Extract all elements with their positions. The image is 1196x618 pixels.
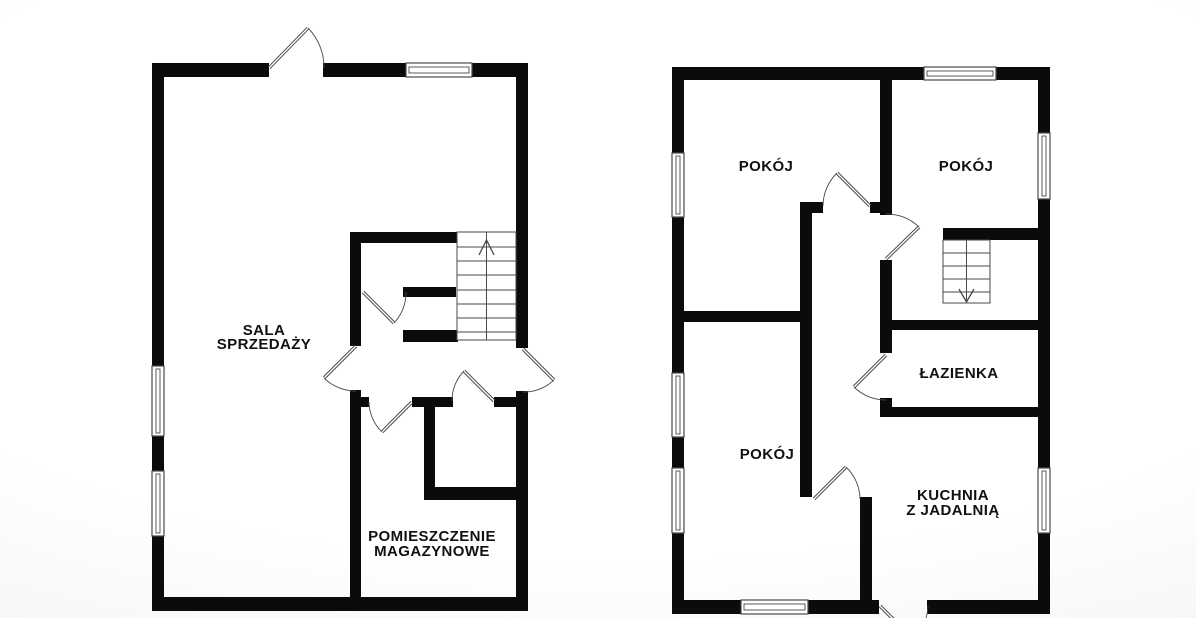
wall-segment <box>672 217 684 373</box>
floorplan-image: SALASPRZEDAŻYPOMIESZCZENIEMAGAZYNOWEPOKÓ… <box>0 0 1196 618</box>
window <box>741 600 808 614</box>
wall-segment <box>672 437 684 468</box>
door-swing-arc <box>308 28 324 68</box>
door-leaf <box>325 347 357 379</box>
wall-segment <box>152 63 164 366</box>
wall-segment <box>684 311 800 322</box>
door-leaf <box>838 172 871 205</box>
door-leaf <box>463 372 493 402</box>
lazienka-label: ŁAZIENKA <box>919 365 998 382</box>
wall-segment <box>880 260 892 353</box>
kuchnia-z-jadalnia-label: Z JADALNIĄ <box>906 502 999 519</box>
floorplan-canvas: SALASPRZEDAŻYPOMIESZCZENIEMAGAZYNOWEPOKÓ… <box>0 0 1196 618</box>
door <box>452 370 495 402</box>
door-swing-arc <box>369 402 382 432</box>
wall-segment <box>403 330 458 342</box>
wall-segment <box>927 600 1050 614</box>
wall-segment <box>672 67 684 153</box>
door <box>879 605 928 618</box>
door-leaf <box>881 605 914 618</box>
pokoj-bottom-left-label: POKÓJ <box>740 445 795 463</box>
wall-segment <box>152 436 164 471</box>
door-swing-arc <box>886 214 919 227</box>
pokoj-top-right-label: POKÓJ <box>939 157 994 175</box>
door-leaf <box>836 174 869 207</box>
staircase-up <box>457 232 516 340</box>
door-swing-arc <box>846 467 860 499</box>
window-frame <box>152 366 164 436</box>
pomieszczenie-magazynowe-label: MAGAZYNOWE <box>374 543 490 560</box>
window <box>152 366 164 436</box>
pokoj-top-left-label: POKÓJ <box>739 157 794 175</box>
door-leaf <box>268 27 307 67</box>
wall-segment <box>152 63 269 77</box>
door-leaf <box>855 356 887 388</box>
window-frame <box>1038 468 1050 533</box>
door <box>823 172 871 207</box>
door <box>362 291 406 324</box>
window-frame <box>672 468 684 533</box>
window-frame <box>924 67 996 80</box>
wall-segment <box>516 391 528 611</box>
window-frame <box>152 471 164 536</box>
wall-segment <box>350 397 369 407</box>
window <box>152 471 164 536</box>
door-swing-arc <box>913 606 928 618</box>
window <box>672 373 684 437</box>
wall-segment <box>494 397 516 407</box>
wall-segment <box>412 397 453 407</box>
door-leaf <box>381 401 411 431</box>
wall-segment <box>424 397 435 494</box>
window <box>924 67 996 80</box>
door-swing-arc <box>823 173 837 206</box>
wall-segment <box>403 287 456 297</box>
wall-segment <box>800 202 812 497</box>
window <box>406 63 472 77</box>
window <box>672 153 684 217</box>
door <box>813 466 860 500</box>
door-leaf <box>364 291 395 322</box>
wall-segment <box>350 232 458 243</box>
door <box>522 348 555 392</box>
window <box>1038 133 1050 199</box>
left-floor-plan: SALASPRZEDAŻYPOMIESZCZENIEMAGAZYNOWE <box>152 27 555 611</box>
window <box>672 468 684 533</box>
wall-segment <box>808 600 879 614</box>
wall-segment <box>943 228 1050 240</box>
window-frame <box>1038 133 1050 199</box>
door-leaf <box>465 370 495 400</box>
door-leaf <box>522 350 553 381</box>
door-leaf <box>853 354 885 386</box>
door-leaf <box>887 228 920 260</box>
wall-segment <box>880 67 892 215</box>
door-leaf <box>885 226 918 258</box>
door-swing-arc <box>523 380 554 392</box>
door <box>853 354 887 400</box>
wall-segment <box>152 597 528 611</box>
window-frame <box>406 63 472 77</box>
window-frame <box>672 373 684 437</box>
wall-segment <box>672 600 741 614</box>
door <box>268 27 324 69</box>
door-leaf <box>815 468 847 500</box>
right-floor-plan: POKÓJPOKÓJŁAZIENKAPOKÓJKUCHNIAZ JADALNIĄ <box>672 67 1050 618</box>
door-leaf <box>270 29 309 69</box>
staircase-down <box>943 240 990 303</box>
sala-sprzedazy-label: SPRZEDAŻY <box>217 336 311 353</box>
window-frame <box>741 600 808 614</box>
wall-segment <box>880 320 1050 330</box>
door-swing-arc <box>324 378 356 391</box>
door-leaf <box>362 293 393 324</box>
door-leaf <box>383 403 413 433</box>
window-frame <box>672 153 684 217</box>
door <box>369 401 413 433</box>
window <box>1038 468 1050 533</box>
wall-segment <box>516 63 528 348</box>
wall-segment <box>860 497 872 602</box>
wall-segment <box>880 407 1050 417</box>
wall-segment <box>350 232 361 346</box>
wall-segment <box>323 63 406 77</box>
door <box>323 345 357 391</box>
door <box>885 214 920 260</box>
wall-segment <box>350 390 361 597</box>
door-leaf <box>813 466 845 498</box>
door-leaf <box>323 345 355 377</box>
door-leaf <box>524 348 555 379</box>
door-swing-arc <box>452 371 464 401</box>
wall-segment <box>1038 67 1050 133</box>
wall-segment <box>424 487 517 500</box>
wall-segment <box>1038 533 1050 614</box>
wall-segment <box>870 202 892 213</box>
